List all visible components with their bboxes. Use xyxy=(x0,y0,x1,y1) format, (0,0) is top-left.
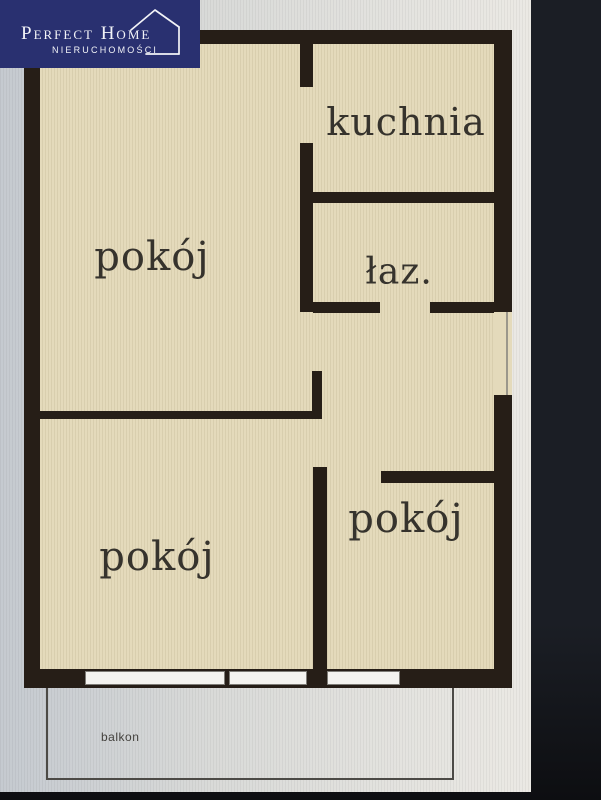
floorplan-photo: kuchnia pokój łaz. pokój pokój balkon Pe… xyxy=(0,0,601,800)
wall-room-br-top xyxy=(381,471,512,483)
wall-bath-bottom-right xyxy=(430,302,494,313)
room-label-top-left: pokój xyxy=(94,234,209,280)
wall-right-lower xyxy=(494,395,512,688)
wall-kitchen-bath-divider xyxy=(313,192,494,203)
wall-left xyxy=(24,30,40,688)
window-bottom-left xyxy=(85,671,225,685)
window-bottom-right xyxy=(327,671,400,685)
wall-bath-bottom-left xyxy=(313,302,380,313)
room-label-bathroom: łaz. xyxy=(365,252,433,293)
room-label-balcony: balkon xyxy=(101,730,139,744)
agency-logo: Perfect Home NIERUCHOMOŚCI xyxy=(0,0,200,68)
window-pane-line xyxy=(506,312,508,395)
window-bottom-middle xyxy=(229,671,307,685)
room-label-kitchen: kuchnia xyxy=(326,100,486,144)
room-label-bottom-right: pokój xyxy=(348,496,463,542)
wall-right-upper xyxy=(494,30,512,312)
room-label-bottom-left: pokój xyxy=(99,534,214,580)
wall-kitchen-lower xyxy=(300,143,313,312)
house-outline-icon xyxy=(0,0,200,68)
window-right-wall xyxy=(494,312,511,395)
wall-bottom-rooms-divider xyxy=(313,467,327,688)
wall-middle-stub xyxy=(312,371,322,419)
wall-middle-thin xyxy=(40,411,322,419)
wall-kitchen-upper xyxy=(300,44,313,87)
